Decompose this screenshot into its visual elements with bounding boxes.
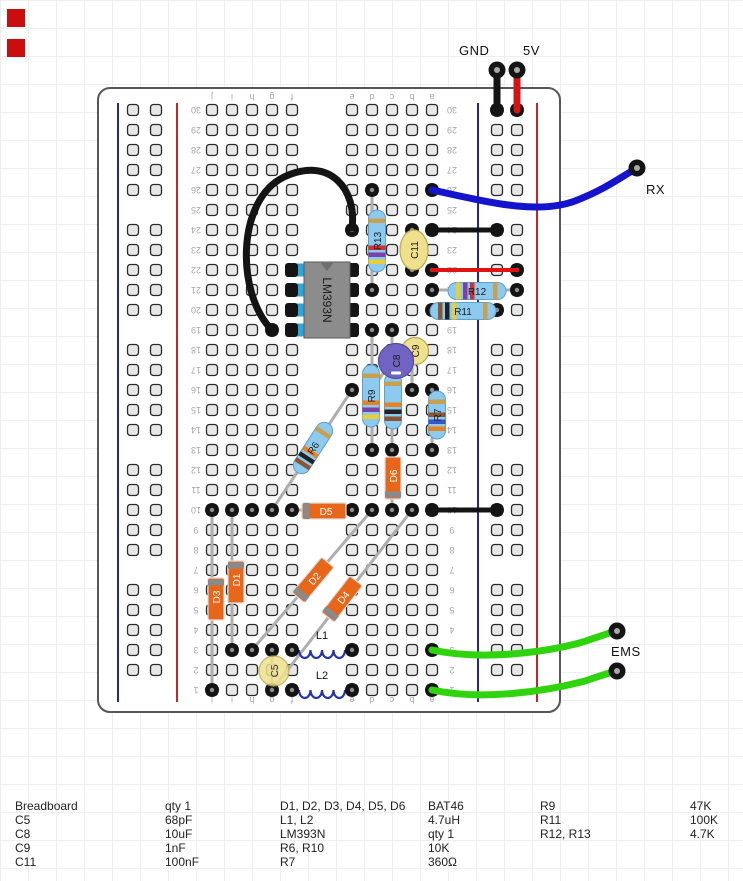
row-number: 15 (447, 405, 457, 415)
contact-ring-center (410, 508, 414, 512)
hole (207, 465, 218, 476)
contact-ring-center (230, 508, 234, 512)
hole (387, 245, 398, 256)
parts-cell: Breadboard (15, 799, 78, 813)
contact-ring-center (370, 448, 374, 452)
5v-pin[interactable] (509, 62, 526, 79)
capacitor-label: C8 (392, 354, 403, 367)
hole (267, 405, 278, 416)
hole (512, 165, 523, 176)
hole (347, 245, 358, 256)
hole (128, 305, 139, 316)
hole (512, 505, 523, 516)
hole (247, 325, 258, 336)
hole (267, 125, 278, 136)
row-number: 10 (191, 505, 201, 515)
row-number: 14 (191, 425, 201, 435)
pin-dot-center (494, 67, 500, 73)
hole (512, 345, 523, 356)
hole (367, 485, 378, 496)
hole (207, 125, 218, 136)
resistor-label: R7 (433, 408, 444, 421)
hole (407, 325, 418, 336)
hole (407, 605, 418, 616)
parts-cell: 100K (690, 813, 718, 827)
parts-cell: R11 (540, 813, 561, 827)
contact-ring-center (250, 648, 254, 652)
row-number: 8 (449, 545, 454, 555)
hole (227, 385, 238, 396)
rx-pin[interactable] (629, 160, 646, 177)
pin-dot-center (614, 628, 620, 634)
row-number: 7 (449, 565, 454, 575)
hole (512, 665, 523, 676)
parts-cell: 100nF (165, 855, 199, 869)
hole (492, 665, 503, 676)
hole (128, 505, 139, 516)
hole (387, 625, 398, 636)
hole (347, 125, 358, 136)
hole (151, 285, 162, 296)
hole (247, 425, 258, 436)
hole (267, 425, 278, 436)
contact-ring-center (370, 288, 374, 292)
hole (427, 325, 438, 336)
hole (227, 205, 238, 216)
hole (367, 545, 378, 556)
row-number: 26 (191, 185, 201, 195)
hole (427, 625, 438, 636)
diode-cathode-band (304, 503, 310, 519)
hole (247, 445, 258, 456)
contact-ring-center (515, 288, 519, 292)
hole (387, 585, 398, 596)
contact-ring-center (370, 188, 374, 192)
hole (151, 585, 162, 596)
row-number: 13 (191, 445, 201, 455)
hole (512, 225, 523, 236)
resistor-label: R9 (367, 389, 378, 402)
hole (247, 685, 258, 696)
hole (247, 485, 258, 496)
contact-ring-center (390, 328, 394, 332)
row-number: 28 (447, 145, 457, 155)
hole (407, 465, 418, 476)
contact-ring-center (270, 688, 274, 692)
diode-label: D3 (212, 590, 223, 603)
hole (128, 345, 139, 356)
hole (207, 365, 218, 376)
hole (227, 445, 238, 456)
resistor-band (363, 374, 380, 379)
hole (227, 485, 238, 496)
hole (247, 145, 258, 156)
hole (247, 125, 258, 136)
hole (387, 305, 398, 316)
parts-cell: LM393N (280, 827, 325, 841)
contact-ring-center (370, 328, 374, 332)
hole (247, 605, 258, 616)
hole (427, 545, 438, 556)
hole (347, 445, 358, 456)
resistor-band (369, 260, 386, 265)
resistor-r7[interactable]: R7 (429, 391, 446, 439)
column-letter: i (231, 92, 233, 102)
hole (207, 185, 218, 196)
ic-label: LM393N (320, 277, 334, 322)
hole (151, 665, 162, 676)
hole (287, 625, 298, 636)
hole (151, 125, 162, 136)
hole (407, 145, 418, 156)
hole (387, 225, 398, 236)
unrouted-marker-2 (7, 39, 25, 57)
hole (387, 285, 398, 296)
hole (427, 485, 438, 496)
row-number: 8 (193, 545, 198, 555)
parts-cell: 47K (690, 799, 711, 813)
hole (227, 185, 238, 196)
hole (128, 665, 139, 676)
hole (151, 265, 162, 276)
contact-ring-center (270, 508, 274, 512)
row-number: 17 (447, 365, 457, 375)
row-number: 27 (447, 165, 457, 175)
row-number: 20 (191, 305, 201, 315)
hole (267, 285, 278, 296)
ic-pad (285, 283, 298, 297)
hole (247, 185, 258, 196)
hole (128, 365, 139, 376)
hole (492, 485, 503, 496)
hole (407, 525, 418, 536)
pin-dot-center (514, 67, 520, 73)
hole (151, 365, 162, 376)
contact-ring-center (370, 508, 374, 512)
hole (151, 345, 162, 356)
hole (267, 105, 278, 116)
hole (407, 185, 418, 196)
hole (227, 365, 238, 376)
hole (347, 625, 358, 636)
hole (367, 645, 378, 656)
hole (227, 305, 238, 316)
hole (207, 205, 218, 216)
hole (287, 565, 298, 576)
hole (207, 245, 218, 256)
parts-cell: D1, D2, D3, D4, D5, D6 (280, 799, 405, 813)
diode-cathode-band (385, 492, 401, 498)
hole (512, 625, 523, 636)
hole (128, 225, 139, 236)
hole (267, 165, 278, 176)
gnd-label: GND (459, 43, 489, 58)
diode-cathode-band (228, 563, 244, 569)
hole (512, 125, 523, 136)
hole (227, 405, 238, 416)
hole (427, 525, 438, 536)
hole (287, 185, 298, 196)
hole (128, 105, 139, 116)
ems-label: EMS (611, 644, 641, 659)
parts-cell: R7 (280, 855, 295, 869)
contact-ring-center (210, 688, 214, 692)
hole (128, 525, 139, 536)
resistor-r13[interactable]: R13 (369, 210, 386, 272)
row-number: 11 (191, 485, 200, 495)
hole (492, 245, 503, 256)
hole (151, 485, 162, 496)
hole (128, 145, 139, 156)
hole (407, 285, 418, 296)
resistor-r11[interactable]: R11 (430, 303, 496, 320)
contact-ring-center (290, 648, 294, 652)
hole (128, 405, 139, 416)
hole (267, 565, 278, 576)
parts-cell: L1, L2 (280, 813, 313, 827)
resistor-r10[interactable] (385, 373, 402, 429)
contact-ring-center (290, 688, 294, 692)
resistor-band (483, 303, 488, 320)
resistor-label: R13 (373, 231, 384, 250)
hole (492, 165, 503, 176)
diode-d6[interactable]: D6 (385, 457, 401, 499)
hole (267, 245, 278, 256)
hole (287, 525, 298, 536)
hole (407, 545, 418, 556)
diode-label: D1 (232, 573, 243, 586)
capacitor-label: C11 (410, 241, 421, 259)
hole (207, 385, 218, 396)
hole (267, 525, 278, 536)
diode-d5[interactable]: D5 (302, 503, 346, 519)
row-number: 3 (193, 645, 198, 655)
parts-cell: 10K (428, 841, 449, 855)
hole (287, 365, 298, 376)
hole (407, 665, 418, 676)
diode-d1[interactable]: D1 (228, 561, 244, 603)
inductor-label: L1 (316, 630, 328, 642)
gnd-pin[interactable] (489, 62, 506, 79)
hole (367, 165, 378, 176)
row-number: 19 (447, 325, 457, 335)
row-number: 6 (449, 585, 454, 595)
row-number: 23 (191, 245, 201, 255)
hole (151, 505, 162, 516)
hole (387, 145, 398, 156)
hole (151, 625, 162, 636)
hole (207, 105, 218, 116)
row-number: 28 (191, 145, 201, 155)
row-number: 16 (191, 385, 201, 395)
diode-d3[interactable]: D3 (208, 578, 224, 620)
hole (512, 525, 523, 536)
hole (267, 205, 278, 216)
row-number: 21 (191, 285, 201, 295)
resistor-band (493, 283, 498, 300)
resistor-band (438, 303, 443, 320)
hole (227, 245, 238, 256)
pin-dot-center (614, 668, 620, 674)
row-number: 25 (191, 205, 201, 215)
hole (387, 185, 398, 196)
hole (227, 125, 238, 136)
row-number: 15 (191, 405, 201, 415)
resistor-band (445, 303, 450, 320)
hole (387, 165, 398, 176)
pin-dot-center (634, 165, 640, 171)
hole (267, 585, 278, 596)
resistor-band (369, 253, 386, 258)
hole (227, 665, 238, 676)
hole (512, 365, 523, 376)
hole (367, 585, 378, 596)
hole (128, 125, 139, 136)
resistor-band (385, 403, 402, 408)
hole (247, 405, 258, 416)
hole (427, 165, 438, 176)
hole (287, 345, 298, 356)
hole (267, 365, 278, 376)
hole (427, 205, 438, 216)
column-letter: j (211, 92, 214, 102)
hole (247, 665, 258, 676)
hole (151, 545, 162, 556)
hole (287, 125, 298, 136)
hole (407, 445, 418, 456)
hole (407, 125, 418, 136)
resistor-band (369, 219, 386, 224)
hole (492, 425, 503, 436)
hole (287, 145, 298, 156)
hole (227, 285, 238, 296)
hole (128, 245, 139, 256)
hole (512, 185, 523, 196)
hole (347, 545, 358, 556)
hole (347, 465, 358, 476)
resistor-r9[interactable]: R9 (363, 365, 380, 427)
contact-ring-center (390, 448, 394, 452)
parts-cell: 360Ω (428, 855, 457, 869)
hole (492, 145, 503, 156)
rx-label: RX (646, 182, 665, 197)
capacitor-c8[interactable]: C8 (379, 344, 414, 379)
diode-label: D6 (389, 469, 400, 482)
hole (407, 305, 418, 316)
contact-ring-center (230, 648, 234, 652)
hole (267, 465, 278, 476)
hole (247, 545, 258, 556)
contact-ring-center (210, 508, 214, 512)
resistor-band (463, 283, 468, 300)
hole (227, 465, 238, 476)
hole (227, 325, 238, 336)
hole (512, 385, 523, 396)
hole (267, 445, 278, 456)
hole (267, 265, 278, 276)
hole (347, 105, 358, 116)
hole (287, 405, 298, 416)
column-letter: e (349, 92, 354, 102)
row-number: 30 (191, 105, 201, 115)
hole (207, 165, 218, 176)
hole (387, 605, 398, 616)
hole (267, 305, 278, 316)
hole (512, 245, 523, 256)
capacitor-c11[interactable]: C11 (400, 230, 428, 270)
hole (492, 345, 503, 356)
hole (267, 605, 278, 616)
hole (128, 585, 139, 596)
hole (387, 545, 398, 556)
hole (407, 205, 418, 216)
column-letter: b (409, 695, 414, 705)
hole (247, 585, 258, 596)
row-number: 2 (449, 665, 454, 675)
ems-pin-2[interactable] (609, 663, 626, 680)
hole (347, 345, 358, 356)
hole (427, 605, 438, 616)
parts-cell: C9 (15, 841, 30, 855)
ic-pad (285, 323, 298, 337)
hole (247, 345, 258, 356)
row-number: 13 (447, 445, 457, 455)
hole (151, 185, 162, 196)
column-letter: h (249, 695, 254, 705)
hole (128, 285, 139, 296)
column-letter: c (389, 695, 394, 705)
row-number: 1 (193, 685, 198, 695)
hole (151, 225, 162, 236)
hole (427, 105, 438, 116)
resistor-band (363, 415, 380, 420)
breadboard-diagram: 1122334455667788991010111112121313141415… (0, 0, 743, 881)
hole (387, 685, 398, 696)
ems-pin-1[interactable] (609, 623, 626, 640)
hole (207, 425, 218, 436)
hole (407, 425, 418, 436)
column-letter: d (369, 92, 374, 102)
hole (227, 105, 238, 116)
hole (287, 205, 298, 216)
row-number: 29 (191, 125, 201, 135)
resistor-label: R11 (454, 307, 472, 318)
hole (387, 125, 398, 136)
parts-cell: 10uF (165, 827, 192, 841)
capacitor-c5[interactable]: C5 (259, 656, 289, 686)
contact-ring-center (390, 508, 394, 512)
hole (151, 465, 162, 476)
hole (151, 165, 162, 176)
hole (407, 645, 418, 656)
hole (247, 525, 258, 536)
hole (407, 485, 418, 496)
hole (347, 605, 358, 616)
resistor-r12[interactable]: R12 (448, 283, 506, 300)
hole (207, 485, 218, 496)
hole (512, 545, 523, 556)
column-letter: b (409, 92, 414, 102)
hole (227, 265, 238, 276)
hole (367, 465, 378, 476)
resistor-band (363, 408, 380, 413)
hole (347, 425, 358, 436)
ic-pad (285, 303, 298, 317)
hole (128, 605, 139, 616)
hole (407, 105, 418, 116)
parts-cell: R9 (540, 799, 555, 813)
diode-cathode-band (208, 580, 224, 586)
